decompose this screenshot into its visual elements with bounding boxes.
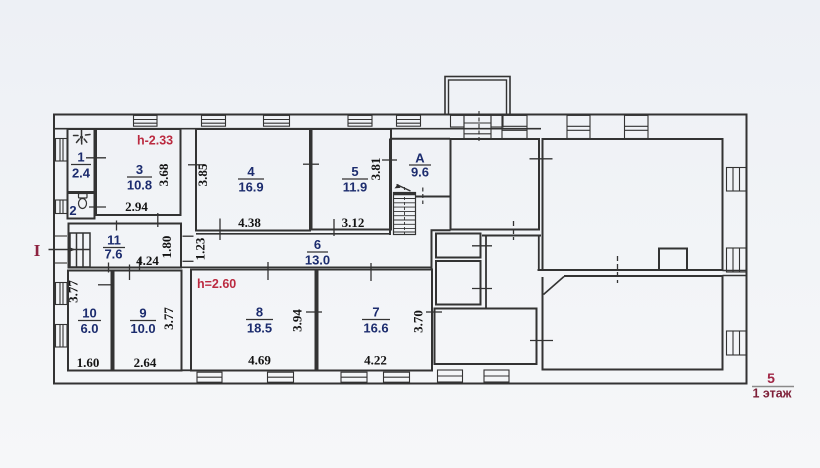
- svg-text:2: 2: [69, 203, 76, 218]
- svg-text:6.0: 6.0: [80, 321, 98, 336]
- svg-text:6: 6: [314, 237, 321, 252]
- svg-text:I: I: [34, 241, 41, 260]
- svg-text:3.85: 3.85: [195, 163, 210, 186]
- svg-text:4: 4: [247, 164, 255, 179]
- svg-text:3.81: 3.81: [368, 158, 383, 181]
- svg-text:16.9: 16.9: [238, 180, 263, 195]
- svg-text:h-2.33: h-2.33: [137, 134, 173, 148]
- svg-text:1.60: 1.60: [77, 355, 100, 370]
- svg-text:10.0: 10.0: [130, 321, 155, 336]
- svg-text:1.80: 1.80: [159, 236, 174, 259]
- svg-text:5: 5: [351, 164, 358, 179]
- svg-text:13.0: 13.0: [305, 253, 330, 268]
- svg-text:16.6: 16.6: [363, 321, 388, 336]
- svg-text:3.94: 3.94: [290, 309, 305, 332]
- svg-text:4.69: 4.69: [248, 353, 271, 368]
- svg-text:1: 1: [77, 150, 84, 165]
- svg-text:2.4: 2.4: [72, 166, 91, 181]
- svg-text:1 этаж: 1 этаж: [752, 387, 791, 401]
- svg-text:3.77: 3.77: [66, 280, 81, 303]
- svg-text:18.5: 18.5: [247, 321, 272, 336]
- svg-text:3: 3: [136, 162, 143, 177]
- svg-text:11: 11: [107, 233, 121, 248]
- svg-text:А: А: [415, 151, 425, 166]
- svg-text:9.6: 9.6: [411, 165, 429, 180]
- svg-text:5: 5: [767, 370, 775, 386]
- svg-text:h=2.60: h=2.60: [197, 277, 236, 291]
- svg-text:7: 7: [372, 305, 379, 320]
- svg-text:9: 9: [139, 306, 146, 321]
- svg-text:3.70: 3.70: [411, 310, 426, 333]
- svg-text:10.8: 10.8: [127, 178, 152, 193]
- svg-text:2.94: 2.94: [125, 199, 148, 214]
- svg-text:1.23: 1.23: [193, 237, 208, 260]
- svg-text:2.64: 2.64: [134, 355, 157, 370]
- svg-text:8: 8: [256, 305, 263, 320]
- svg-text:7.6: 7.6: [104, 247, 122, 262]
- svg-text:4.22: 4.22: [364, 353, 387, 368]
- svg-text:4.38: 4.38: [238, 215, 261, 230]
- svg-text:10: 10: [82, 306, 96, 321]
- svg-text:4.24: 4.24: [136, 253, 159, 268]
- svg-text:3.12: 3.12: [342, 215, 365, 230]
- svg-text:3.77: 3.77: [161, 307, 176, 330]
- svg-text:3.68: 3.68: [156, 163, 171, 186]
- svg-text:11.9: 11.9: [343, 180, 368, 195]
